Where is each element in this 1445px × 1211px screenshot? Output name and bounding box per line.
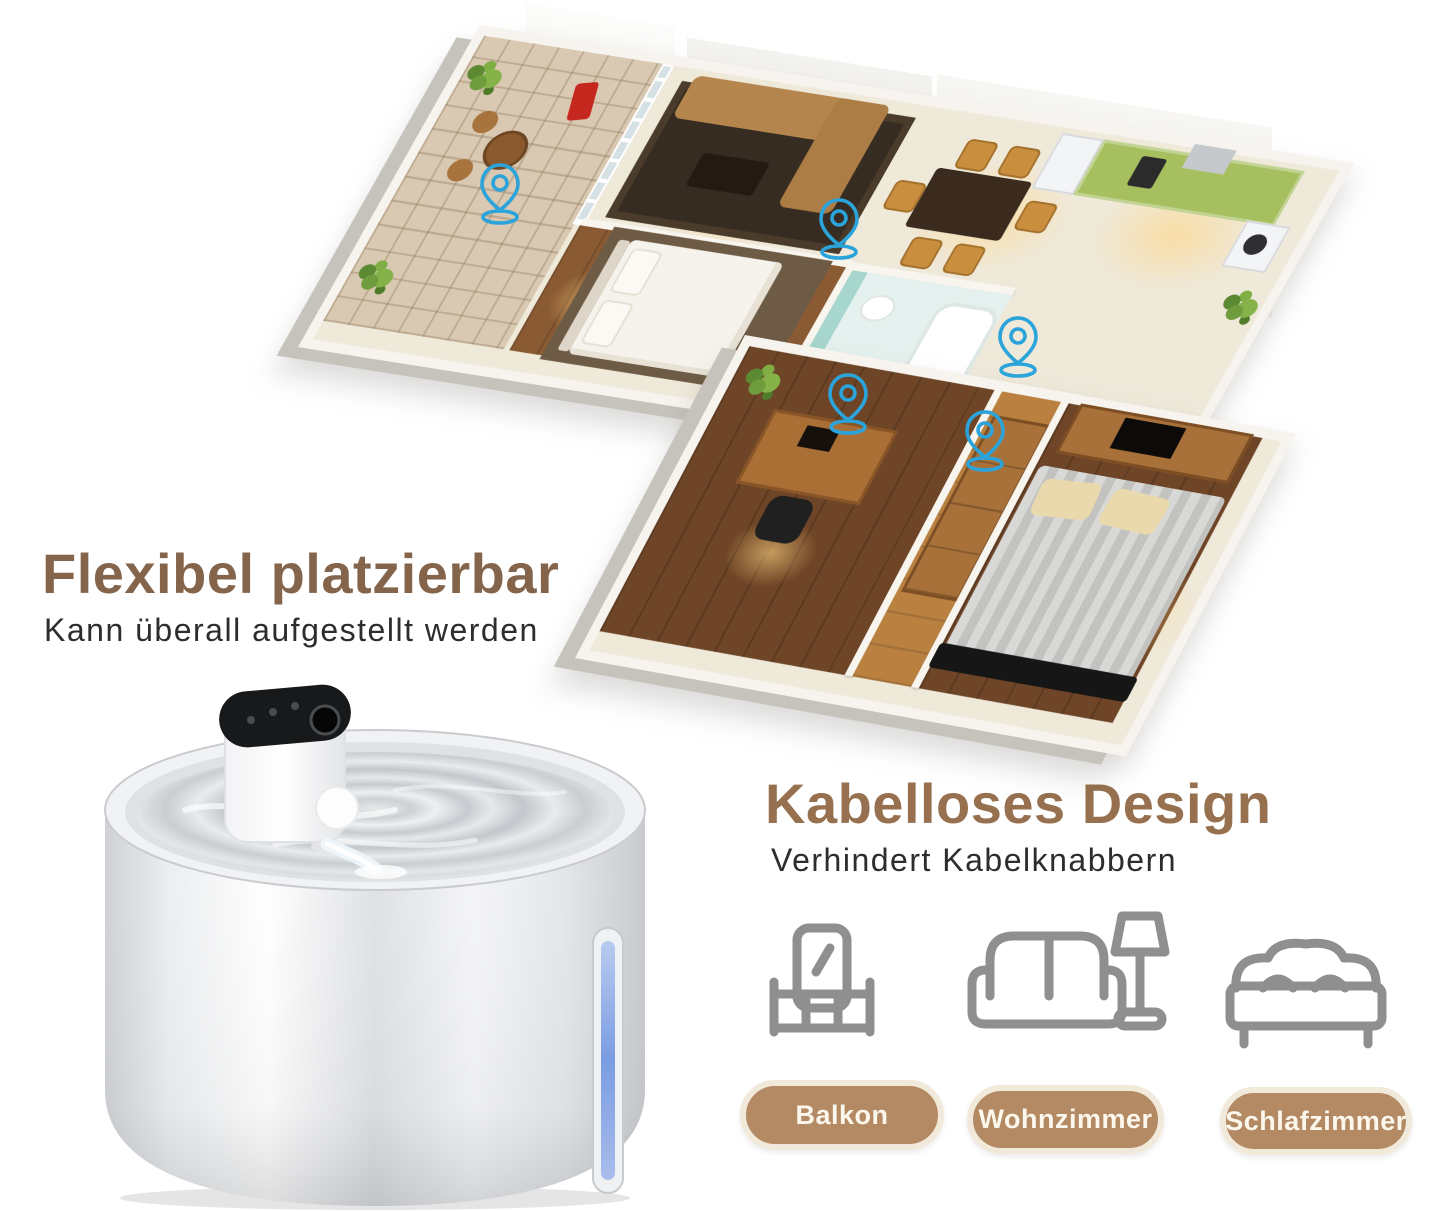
splash bbox=[355, 865, 407, 879]
bed-icon bbox=[1218, 928, 1393, 1054]
dining-chair bbox=[953, 138, 1000, 172]
balcony-icon bbox=[762, 922, 882, 1052]
panel-icon bbox=[247, 716, 255, 724]
panel-icon bbox=[269, 708, 277, 716]
room-badge-wohnzimmer: Wohnzimmer bbox=[967, 1085, 1164, 1154]
panel-icon bbox=[291, 702, 299, 710]
dining-chair bbox=[898, 236, 945, 270]
location-pin-icon bbox=[994, 313, 1042, 379]
sofa-lamp-icon bbox=[962, 900, 1172, 1060]
water-fountain-product-image bbox=[75, 660, 670, 1210]
dining-table bbox=[904, 167, 1032, 241]
kitchen-floor bbox=[1012, 134, 1320, 330]
plant bbox=[746, 378, 769, 396]
room-badge-schlafzimmer: Schlafzimmer bbox=[1220, 1087, 1412, 1155]
section-subtitle: Kann überall aufgestellt werden bbox=[44, 612, 559, 649]
plant bbox=[358, 274, 382, 291]
plant bbox=[1223, 304, 1247, 321]
location-pin-icon bbox=[476, 160, 524, 226]
lounge-chair bbox=[566, 82, 599, 121]
section-title: Kabelloses Design bbox=[765, 775, 1271, 832]
room-badge-label: Wohnzimmer bbox=[978, 1104, 1152, 1135]
wireless-design-section: Kabelloses Design Verhindert Kabelknabbe… bbox=[765, 775, 1271, 879]
tower-bump bbox=[316, 787, 358, 829]
dining-chair bbox=[996, 145, 1043, 179]
dispenser-tower bbox=[217, 682, 358, 853]
room-badge-label: Schlafzimmer bbox=[1225, 1106, 1407, 1137]
room-badge-label: Balkon bbox=[795, 1100, 888, 1131]
desk bbox=[736, 409, 899, 505]
chair bbox=[442, 157, 477, 183]
plant bbox=[467, 74, 491, 91]
dining-chair bbox=[941, 243, 988, 277]
water-level-window bbox=[593, 928, 623, 1193]
section-title: Flexibel platzierbar bbox=[42, 545, 559, 602]
office-chair bbox=[751, 494, 818, 546]
chair bbox=[468, 109, 503, 135]
room-badge-balkon: Balkon bbox=[740, 1080, 944, 1150]
flexible-placement-section: Flexibel platzierbar Kann überall aufges… bbox=[42, 545, 559, 649]
section-subtitle: Verhindert Kabelknabbern bbox=[771, 842, 1271, 879]
location-pin-icon bbox=[824, 370, 872, 436]
sensor-lens bbox=[311, 706, 339, 734]
location-pin-icon bbox=[961, 407, 1009, 473]
product-marketing-graphic: Flexibel platzierbar Kann überall aufges… bbox=[0, 0, 1445, 1211]
location-pin-icon bbox=[815, 195, 863, 261]
washbasin bbox=[854, 293, 901, 324]
